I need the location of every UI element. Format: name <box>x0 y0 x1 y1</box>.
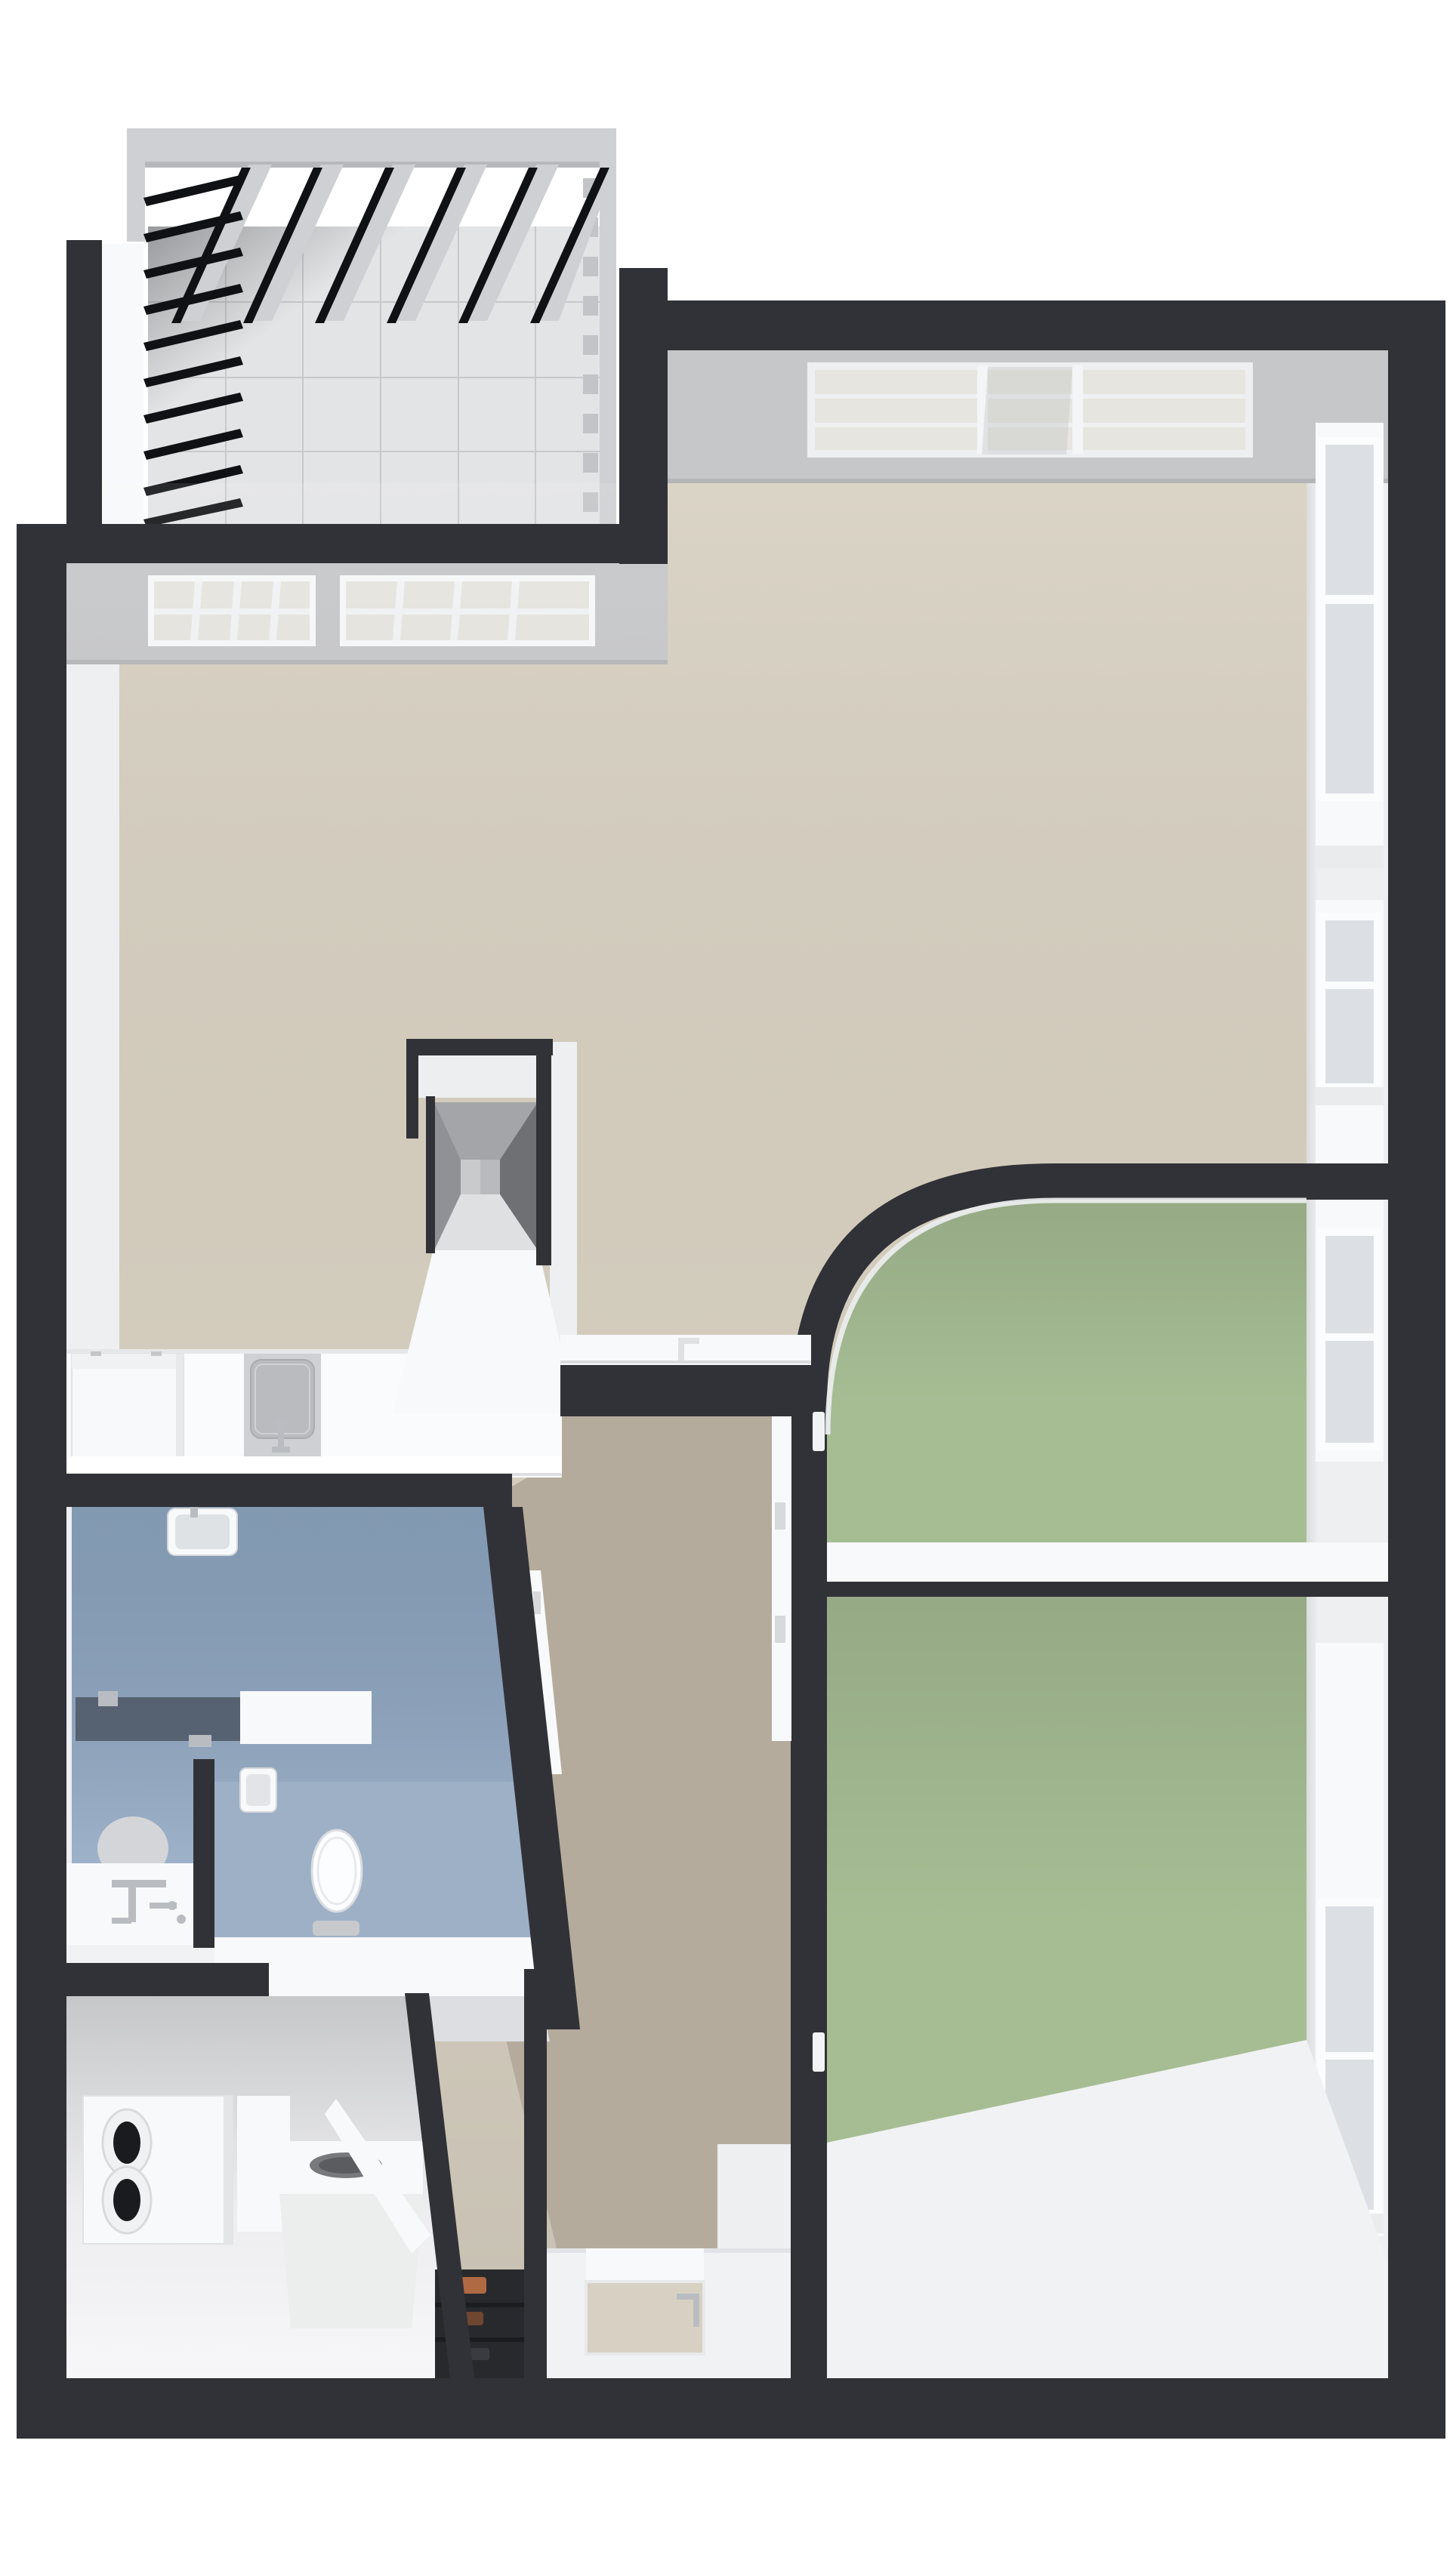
hallway-pocket-door <box>772 1416 791 1741</box>
closet-corner-wall <box>406 1039 418 1139</box>
entry-door-leaf <box>586 2248 704 2282</box>
niche-right-wall <box>524 1969 547 2378</box>
terrace-left-wall <box>66 240 102 527</box>
room-laundry <box>66 1996 465 2378</box>
pocket-door-handle <box>533 1592 541 1614</box>
sliding-door-handle <box>775 1502 785 1530</box>
sash-window <box>1316 1217 1384 1462</box>
right-outer-wall <box>1388 300 1445 2439</box>
left-wall-face <box>66 664 119 1349</box>
wash-basin <box>168 1505 237 1555</box>
top-wall <box>619 300 1445 350</box>
closet-top-wall <box>406 1039 553 1055</box>
duct-core-light <box>461 1160 480 1194</box>
closet-shaft-right-wall <box>536 1039 551 1265</box>
closet-shaft-left-wall <box>426 1096 435 1253</box>
bottom-wall <box>17 2378 1445 2439</box>
wc-basin <box>240 1768 276 1812</box>
kitchen-front-wall <box>17 1474 512 1507</box>
bedroom-divider-ledge <box>827 1542 1388 1582</box>
sash-window <box>1316 423 1384 868</box>
hallway-north-wall <box>560 1365 811 1416</box>
terrace-bottom-wall <box>17 524 621 563</box>
room-bedroom-lower <box>827 1597 1388 2378</box>
bathroom-divider-wall <box>193 1759 214 1948</box>
bathroom-bottom-wall <box>17 1963 269 1996</box>
divider-shadow-wall <box>827 1582 1388 1597</box>
bedroom-door-handle <box>813 1412 825 1451</box>
kitchen-sink <box>244 1354 321 1456</box>
kitchen-appliance <box>72 1351 184 1473</box>
floorplan-render <box>0 0 1450 2576</box>
room-bedroom-upper <box>826 1199 1307 1542</box>
doormat <box>586 2282 704 2354</box>
shower-glass-panel <box>76 1691 372 1747</box>
closet-ledge <box>417 1055 536 1098</box>
skylight <box>807 362 1253 458</box>
bedroom-door-handle <box>813 2032 825 2072</box>
sliding-door-handle <box>775 1616 785 1643</box>
ceiling-strip-top <box>668 350 1388 483</box>
washing-machine <box>83 2096 233 2244</box>
